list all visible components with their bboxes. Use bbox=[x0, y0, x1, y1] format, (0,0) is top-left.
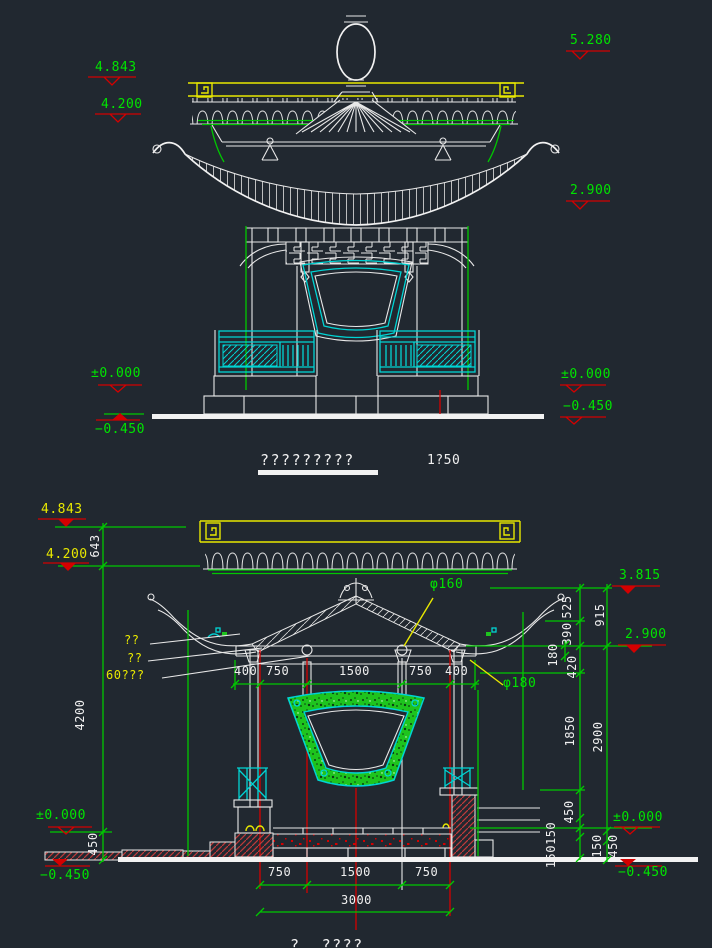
dim-top-750-left: 750 bbox=[266, 665, 289, 677]
diameter-180: φ180 bbox=[503, 677, 536, 690]
dim-450-left: 450 bbox=[87, 822, 99, 866]
dim-150: 150 bbox=[591, 824, 603, 868]
dim-top-400-right: 400 bbox=[445, 665, 468, 677]
diameter-160: φ160 bbox=[430, 578, 463, 591]
dim-450-right: 450 bbox=[563, 790, 575, 834]
dim-1850: 1850 bbox=[564, 709, 576, 753]
upper-fan-window bbox=[300, 257, 412, 341]
lower-level-right-zero: ±0.000 bbox=[613, 811, 663, 824]
upper-level-left-top: 4.843 bbox=[95, 61, 137, 74]
dim-915: 915 bbox=[594, 593, 606, 637]
dim-150150: 150150 bbox=[545, 813, 557, 877]
upper-level-left-mid: 4.200 bbox=[101, 98, 143, 111]
lower-level-right-neg: −0.450 bbox=[618, 866, 668, 879]
dim-top-1500: 1500 bbox=[339, 665, 370, 677]
pavilion-elevation-linework bbox=[0, 0, 712, 948]
note-2: ?? bbox=[127, 652, 142, 664]
upper-roof-eaves bbox=[153, 138, 559, 225]
dim-180: 180 bbox=[547, 633, 559, 677]
upper-view-scale: 1?50 bbox=[427, 454, 460, 467]
lower-fan-window bbox=[288, 691, 424, 786]
dim-bottom-1500: 1500 bbox=[340, 866, 371, 878]
upper-level-right-neg: −0.450 bbox=[563, 400, 613, 413]
dim-643: 643 bbox=[89, 524, 101, 568]
dim-bottom-750-left: 750 bbox=[268, 866, 291, 878]
upper-level-left-neg: −0.450 bbox=[95, 423, 145, 436]
lower-level-left-mid: 4.200 bbox=[46, 548, 88, 561]
lower-level-right-top: 3.815 bbox=[619, 569, 661, 582]
lower-cornice-band bbox=[200, 521, 520, 574]
lower-level-right-mid: 2.900 bbox=[625, 628, 667, 641]
upper-view-title: ????????? bbox=[260, 453, 355, 468]
upper-level-left-zero: ±0.000 bbox=[91, 367, 141, 380]
upper-ground-line bbox=[152, 414, 544, 419]
upper-level-right-mid: 2.900 bbox=[570, 184, 612, 197]
note-1: ?? bbox=[124, 634, 139, 646]
dim-top-400-left: 400 bbox=[234, 665, 257, 677]
upper-level-right-zero: ±0.000 bbox=[561, 368, 611, 381]
dim-2900: 2900 bbox=[592, 715, 604, 759]
lower-level-left-top: 4.843 bbox=[41, 503, 83, 516]
note-3: 60??? bbox=[106, 669, 145, 681]
lower-view-title-partial: ? ???? bbox=[290, 938, 364, 948]
lower-level-left-neg: −0.450 bbox=[40, 869, 90, 882]
dim-bottom-750-right: 750 bbox=[415, 866, 438, 878]
lower-roof-section bbox=[148, 578, 564, 654]
cad-drawing-canvas: 4.843 4.200 5.280 2.900 ±0.000 −0.450 ±0… bbox=[0, 0, 712, 948]
dim-bottom-3000: 3000 bbox=[341, 894, 372, 906]
dim-4200: 4200 bbox=[74, 693, 86, 737]
upper-frieze-lattice bbox=[240, 228, 474, 282]
dim-420: 420 bbox=[566, 645, 578, 689]
upper-pavilion-drawing bbox=[88, 16, 610, 475]
upper-level-right-top: 5.280 bbox=[570, 34, 612, 47]
lower-level-left-zero: ±0.000 bbox=[36, 809, 86, 822]
dim-450-base: 450 bbox=[607, 824, 619, 868]
title-underline bbox=[258, 470, 378, 475]
dim-top-750-right: 750 bbox=[409, 665, 432, 677]
